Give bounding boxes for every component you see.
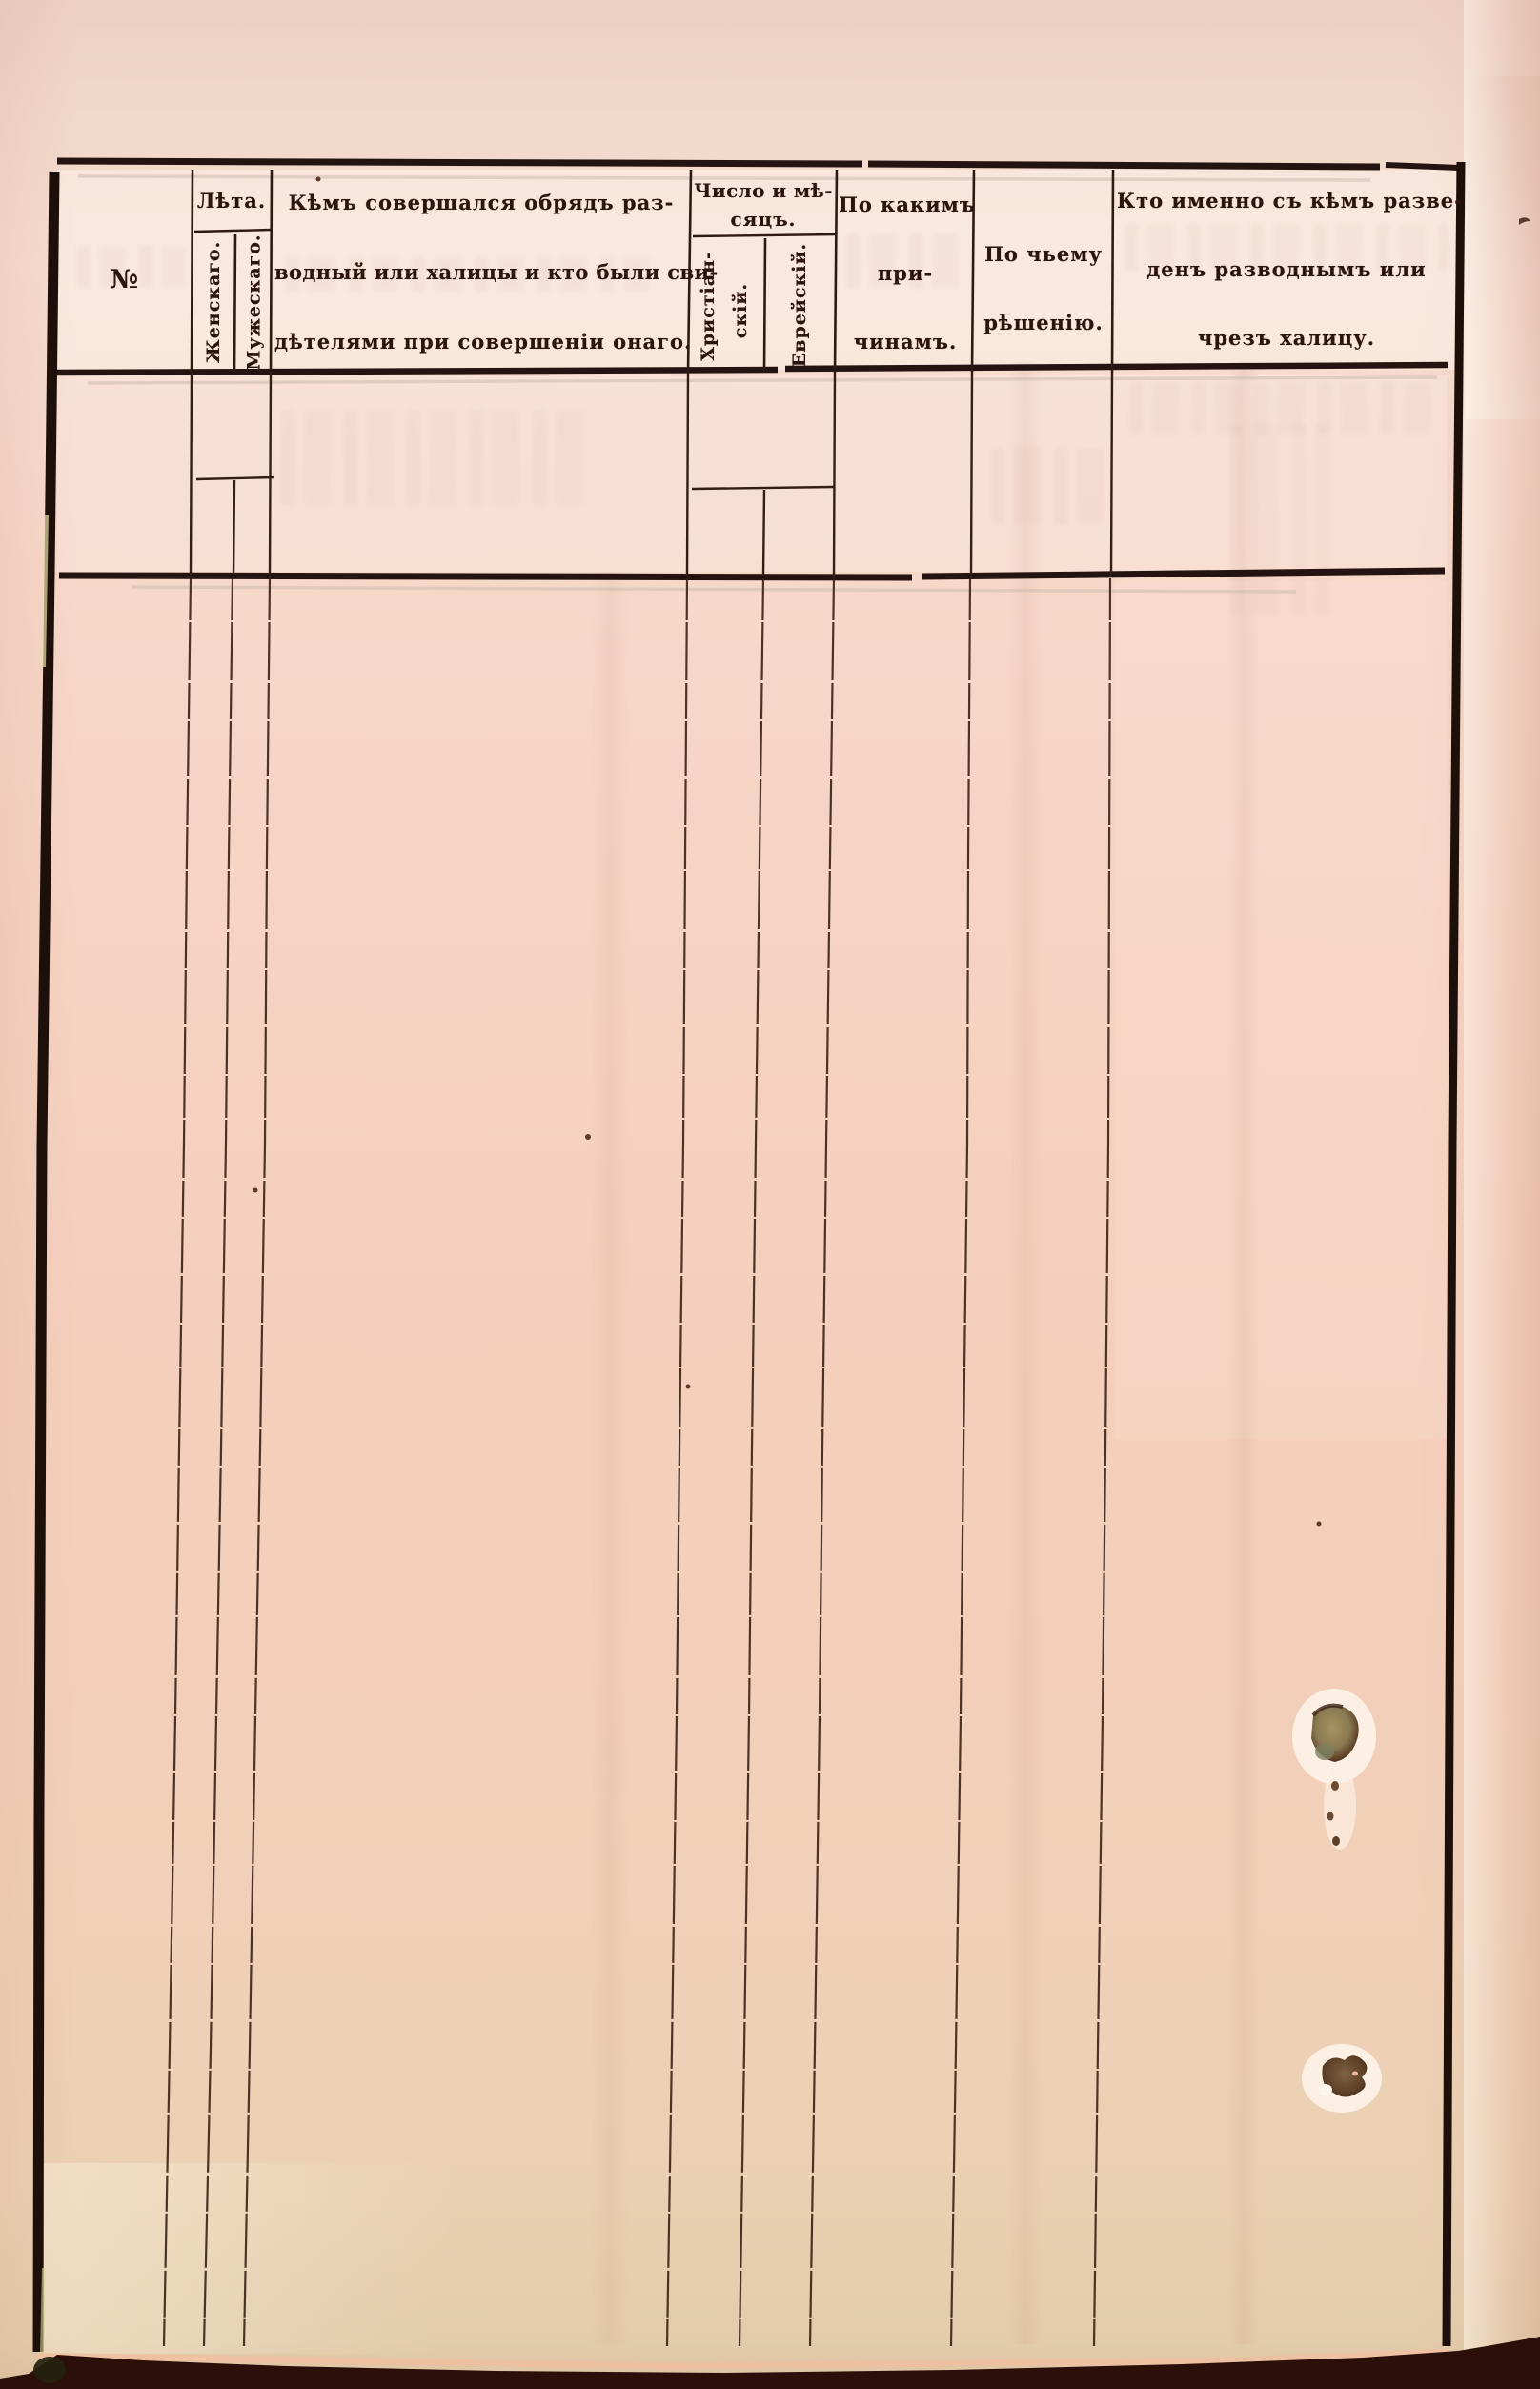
table-ruling [0,0,1540,2389]
col-header-decision-line2: рѣшенію. [976,311,1111,334]
right-border [1447,162,1461,2346]
col-header-reasons-line2: при- [839,261,972,285]
header-ticks [194,230,836,236]
col-header-date-line2: сяцъ. [693,208,834,231]
col-header-reasons-line1: По какимъ [839,192,972,216]
col-header-who-line3: чрезъ халицу. [1117,326,1456,350]
left-border [38,172,54,2352]
col-header-who-line1: Кто именно съ кѣмъ разве- [1117,189,1456,213]
scanned-registry-page: № Лѣта. Женскаго. Мужескаго. Кѣмъ соверш… [0,0,1540,2389]
echo-lines [78,176,1437,592]
col-header-ceremony-line3: дѣтелями при совершеніи онаго. [274,330,688,354]
col-header-ceremony-line2: водный или халицы и кто были сви- [274,260,688,284]
col-header-who-line2: денъ разводнымъ или [1117,257,1456,281]
col-header-decision-line1: По чьему [976,242,1111,266]
wormhole-1 [1292,1689,1376,1850]
col-header-number: № [59,265,191,294]
row2-verticals [191,373,1112,576]
body-column-rules [164,578,1110,2346]
wormhole-2 [1302,2044,1382,2113]
col-header-reasons-line3: чинамъ. [839,330,972,354]
col-header-age: Лѣта. [192,189,271,213]
col-header-date-line1: Число и мѣ- [693,179,834,202]
col-header-ceremony-line1: Кѣмъ совершался обрядъ раз- [274,191,688,214]
bottom-left-blob [33,2357,66,2383]
